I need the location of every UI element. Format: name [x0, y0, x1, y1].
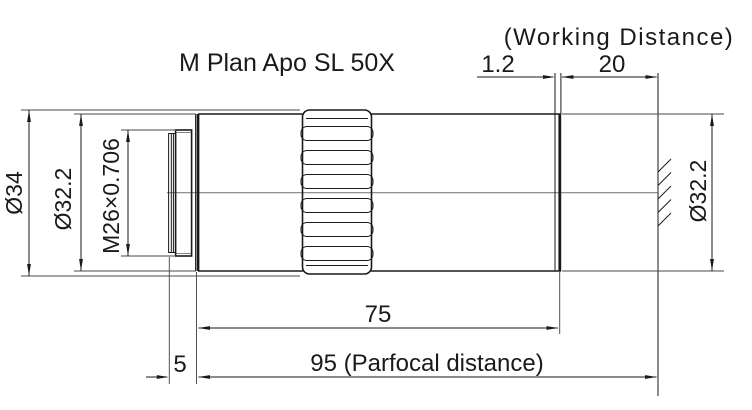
- dim-text-thread-length: 5: [173, 351, 186, 378]
- arrow-left-icon: [198, 375, 210, 379]
- dim-text-lens-recess: 1.2: [481, 51, 514, 78]
- arrow-down-icon: [79, 259, 83, 271]
- arrow-left-icon: [562, 75, 574, 79]
- arrow-up-icon: [126, 130, 130, 142]
- dim-text-barrel-length: 75: [365, 301, 392, 328]
- arrow-right-icon: [543, 75, 555, 79]
- dim-text-front-barrel-diameter: Ø32.2: [685, 160, 711, 223]
- lens-body: [196, 73, 561, 271]
- knurl-ridges: [301, 119, 373, 266]
- dim-text-thread-spec: M26×0.706: [98, 138, 124, 254]
- arrow-right-icon: [646, 75, 658, 79]
- dim-barrel-length: 75: [198, 272, 560, 334]
- arrow-right-icon: [157, 375, 169, 379]
- hatch-marks: [658, 159, 671, 226]
- working-distance-label: (Working Distance): [504, 24, 735, 51]
- arrow-left-icon: [198, 326, 210, 330]
- dim-lens-recess: 1.2: [477, 51, 555, 79]
- arrow-right-icon: [547, 326, 559, 330]
- dim-working-distance: 20: [562, 51, 658, 79]
- specimen-plane: [658, 73, 671, 396]
- technical-drawing-page: M Plan Apo SL 50X (Working Distance): [0, 0, 752, 410]
- arrow-down-icon: [27, 264, 31, 276]
- arrow-up-icon: [79, 114, 83, 126]
- knurl-grip: [301, 110, 373, 274]
- arrow-right-icon: [645, 375, 657, 379]
- objective-lens-drawing: M Plan Apo SL 50X (Working Distance): [0, 0, 752, 410]
- dim-text-parfocal-distance: 95 (Parfocal distance): [310, 350, 543, 377]
- dim-text-rear-barrel-diameter: Ø32.2: [50, 168, 76, 231]
- dim-thread-spec: M26×0.706: [98, 130, 176, 256]
- dim-text-knurl-diameter: Ø34: [1, 171, 27, 215]
- dim-text-working-distance: 20: [599, 51, 626, 78]
- drawing-title: M Plan Apo SL 50X: [179, 49, 395, 77]
- arrow-up-icon: [27, 110, 31, 122]
- arrow-down-icon: [710, 259, 714, 271]
- arrow-down-icon: [126, 244, 130, 256]
- arrow-up-icon: [710, 114, 714, 126]
